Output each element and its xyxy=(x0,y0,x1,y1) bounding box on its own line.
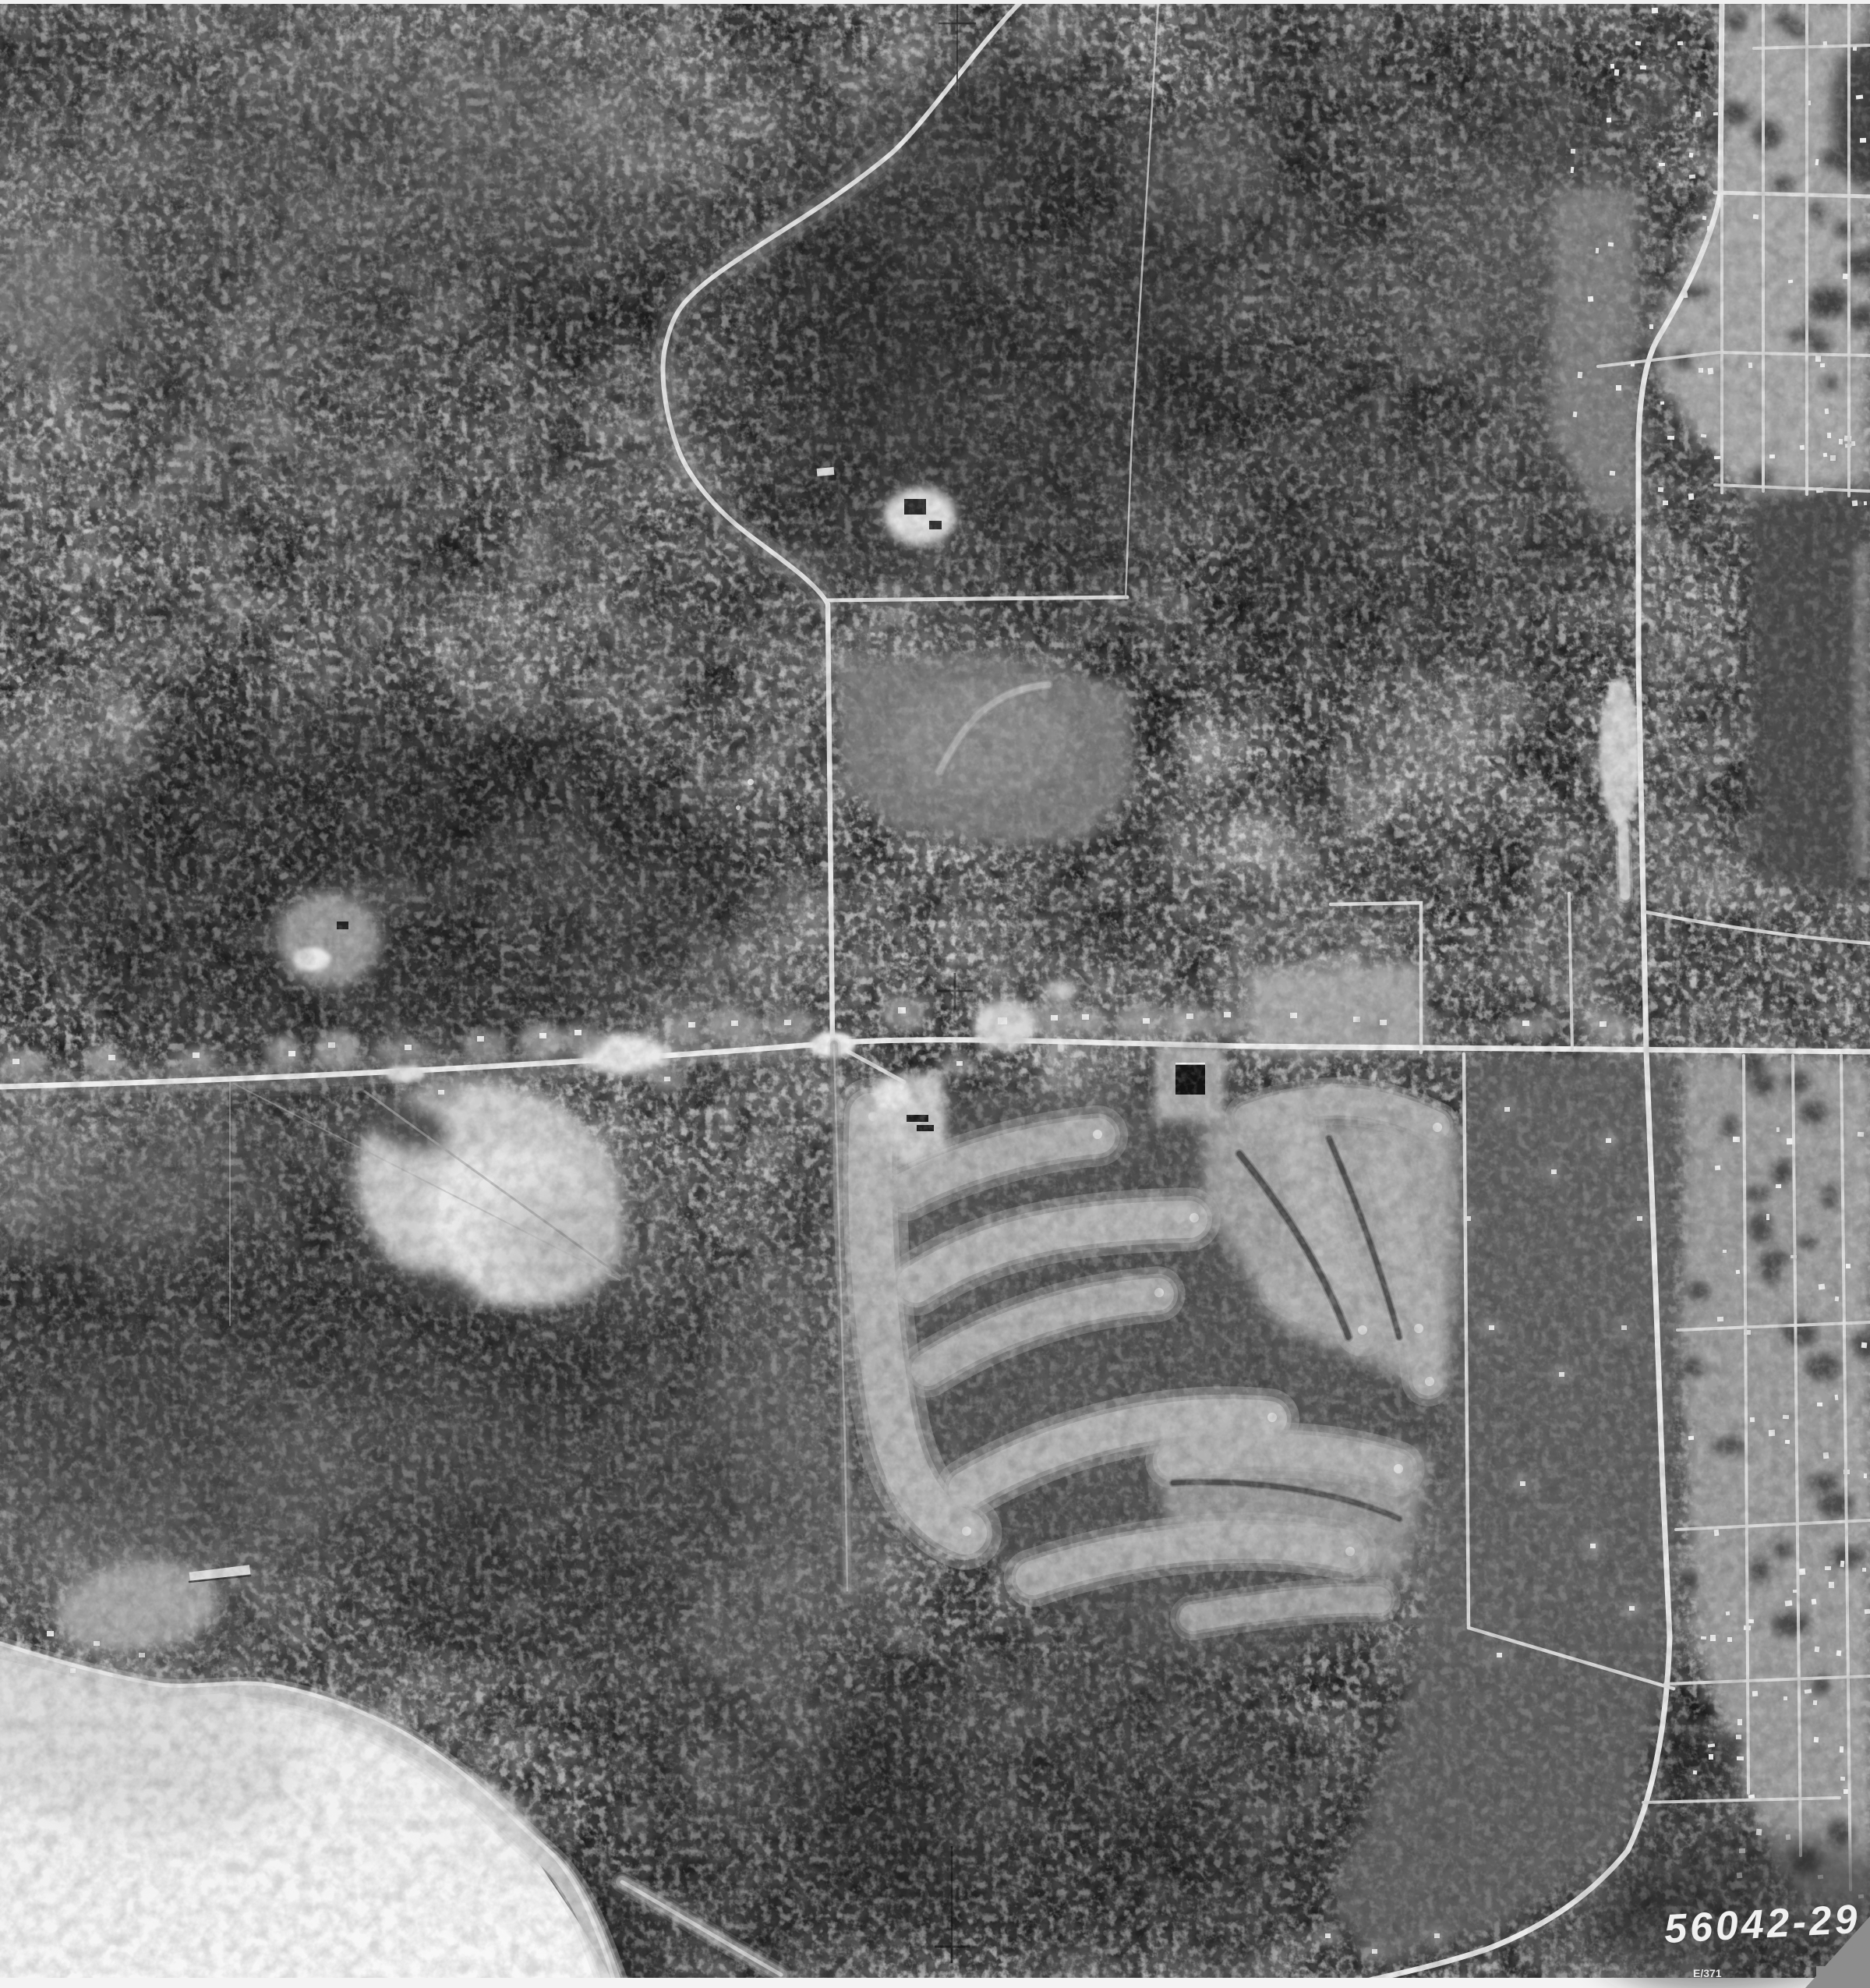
svg-text:E/371: E/371 xyxy=(1693,1967,1722,1979)
